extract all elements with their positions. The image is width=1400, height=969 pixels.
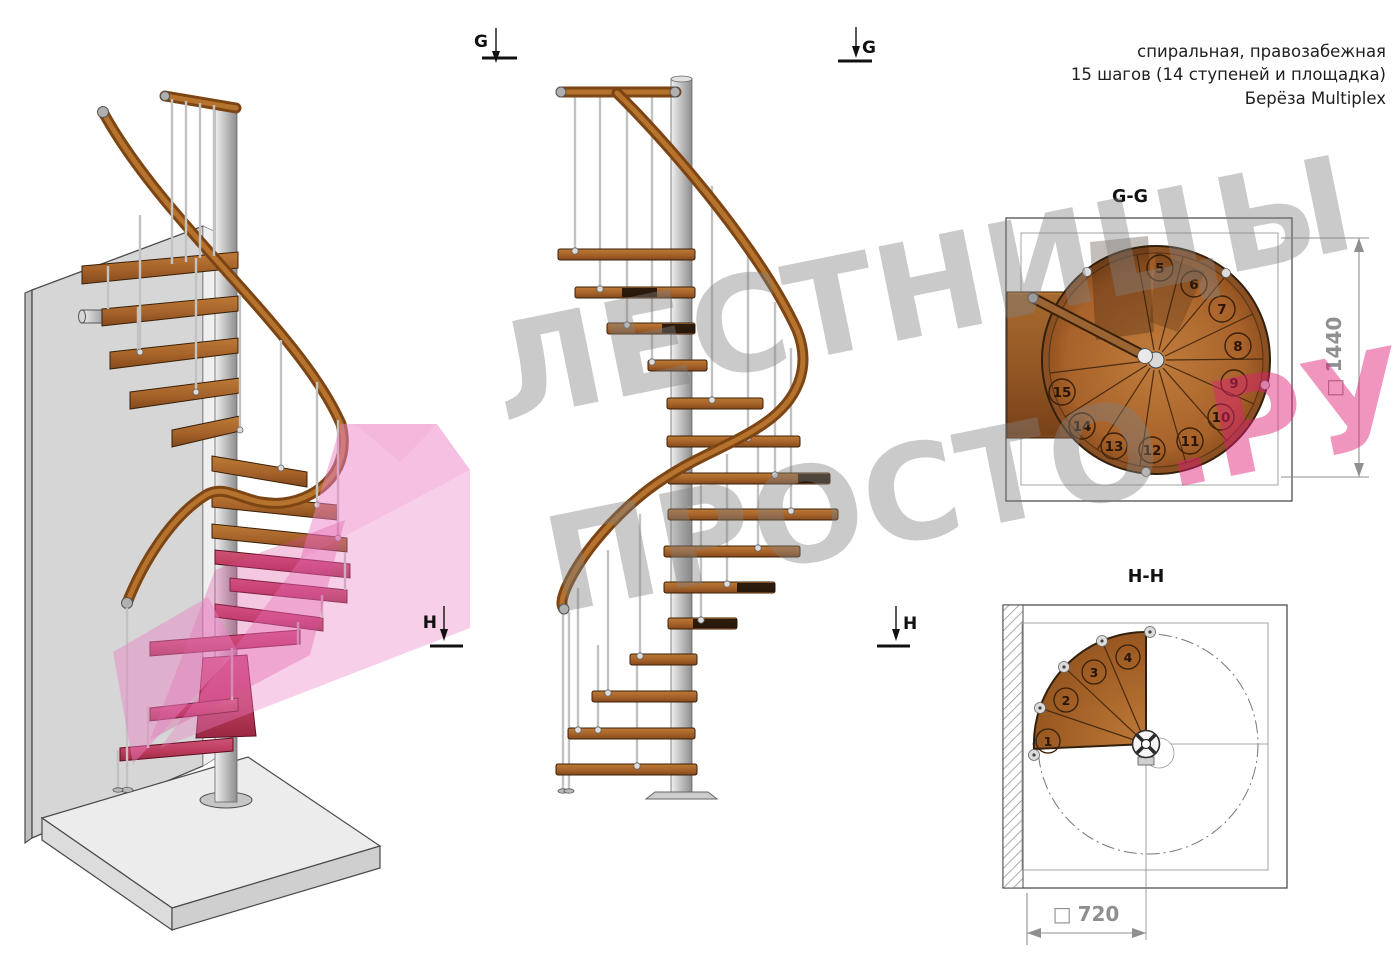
section-label-h: H [903, 614, 917, 634]
dimension-arrow-icon [1132, 928, 1146, 938]
section-marker-g-right: G [838, 27, 876, 61]
staircase-drawing: H [0, 0, 1400, 969]
section-label-g: G [474, 32, 488, 52]
plan-view-hh: H-H 1 2 3 4 □720 [1003, 567, 1287, 945]
view-3d-staircase: H [25, 92, 470, 931]
svg-text:7: 7 [1217, 302, 1226, 318]
section-marker-h-right: H [877, 606, 917, 646]
plan-gg-title: G-G [1112, 187, 1148, 207]
wall-hatch [1003, 605, 1023, 888]
handrail-cap [98, 107, 109, 118]
svg-text:3: 3 [1090, 665, 1099, 680]
dimension-gg: □1440 [1281, 238, 1369, 477]
svg-text:5: 5 [1155, 261, 1164, 277]
dimension-arrow-icon [1354, 238, 1364, 252]
handrail-ball-finial [1138, 349, 1153, 364]
svg-text:15: 15 [1053, 385, 1072, 401]
pole-base [646, 792, 717, 799]
rail-cap [559, 604, 569, 614]
svg-text:9: 9 [1229, 376, 1238, 392]
section-marker-g-left: G [474, 28, 517, 63]
view-elevation [556, 76, 838, 799]
section-arrow-icon [892, 629, 900, 641]
spec-line-steps: 15 шагов (14 ступеней и площадка) [1071, 63, 1386, 86]
svg-text:14: 14 [1073, 419, 1092, 435]
dimension-arrow-icon [1027, 928, 1041, 938]
svg-text:11: 11 [1181, 434, 1200, 450]
handrail-cap [1028, 293, 1038, 303]
spec-line-type: спиральная, правозабежная [1071, 40, 1386, 63]
svg-text:12: 12 [1143, 443, 1162, 459]
dimension-gg-label: □1440 [1322, 317, 1346, 398]
wall-edge [25, 290, 32, 843]
wall-mount-cap [79, 310, 86, 323]
section-arrow-icon [852, 46, 860, 58]
svg-text:10: 10 [1212, 410, 1231, 426]
square-symbol-icon: □ [1053, 902, 1072, 926]
section-label-h: H [423, 613, 437, 633]
plan-view-gg: G-G 5 6 7 8 9 10 11 12 13 14 [1006, 187, 1369, 501]
dimension-hh: □720 [1027, 893, 1146, 945]
rail-cap [670, 87, 680, 97]
svg-text:2: 2 [1062, 693, 1071, 708]
dimension-arrow-icon [1354, 463, 1364, 477]
svg-text:4: 4 [1124, 650, 1133, 665]
rail-cap [556, 87, 566, 97]
svg-text:1: 1 [1044, 734, 1053, 749]
dimension-hh-label: □720 [1053, 902, 1120, 926]
handrail-cap [122, 598, 133, 609]
section-label-g: G [862, 38, 876, 58]
pole-top-cap [671, 76, 692, 82]
drawing-page: H [0, 0, 1400, 969]
spec-line-material: Берёза Multiplex [1071, 87, 1386, 110]
landing-rail-cap [161, 92, 170, 101]
svg-text:8: 8 [1233, 339, 1242, 355]
svg-text:13: 13 [1105, 439, 1124, 455]
svg-text:6: 6 [1189, 277, 1198, 293]
square-symbol-icon: □ [1322, 378, 1346, 397]
spec-header: спиральная, правозабежная 15 шагов (14 с… [1071, 40, 1386, 110]
plan-hh-title: H-H [1128, 567, 1165, 587]
